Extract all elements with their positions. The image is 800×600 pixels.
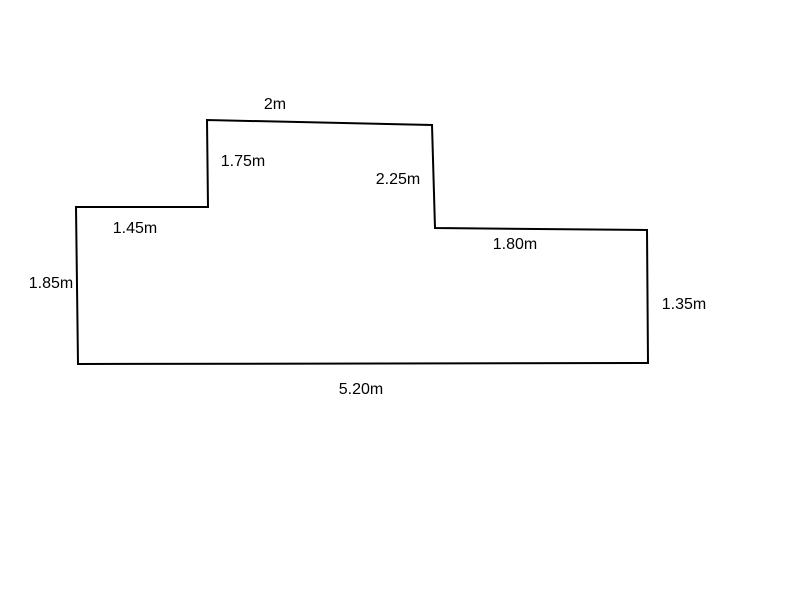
dimension-label-2m: 2m [264,97,286,113]
dimension-label-2-25m: 2.25m [376,172,420,188]
shape-outline [76,120,648,364]
dimension-label-1-35m: 1.35m [662,297,706,313]
dimension-label-5-20m: 5.20m [339,382,383,398]
dimension-label-1-85m: 1.85m [29,276,73,292]
dimension-label-1-45m: 1.45m [113,221,157,237]
dimension-label-1-80m: 1.80m [493,237,537,253]
diagram-canvas: 2m1.75m2.25m1.45m1.80m1.85m1.35m5.20m [0,0,800,600]
dimension-label-1-75m: 1.75m [221,154,265,170]
